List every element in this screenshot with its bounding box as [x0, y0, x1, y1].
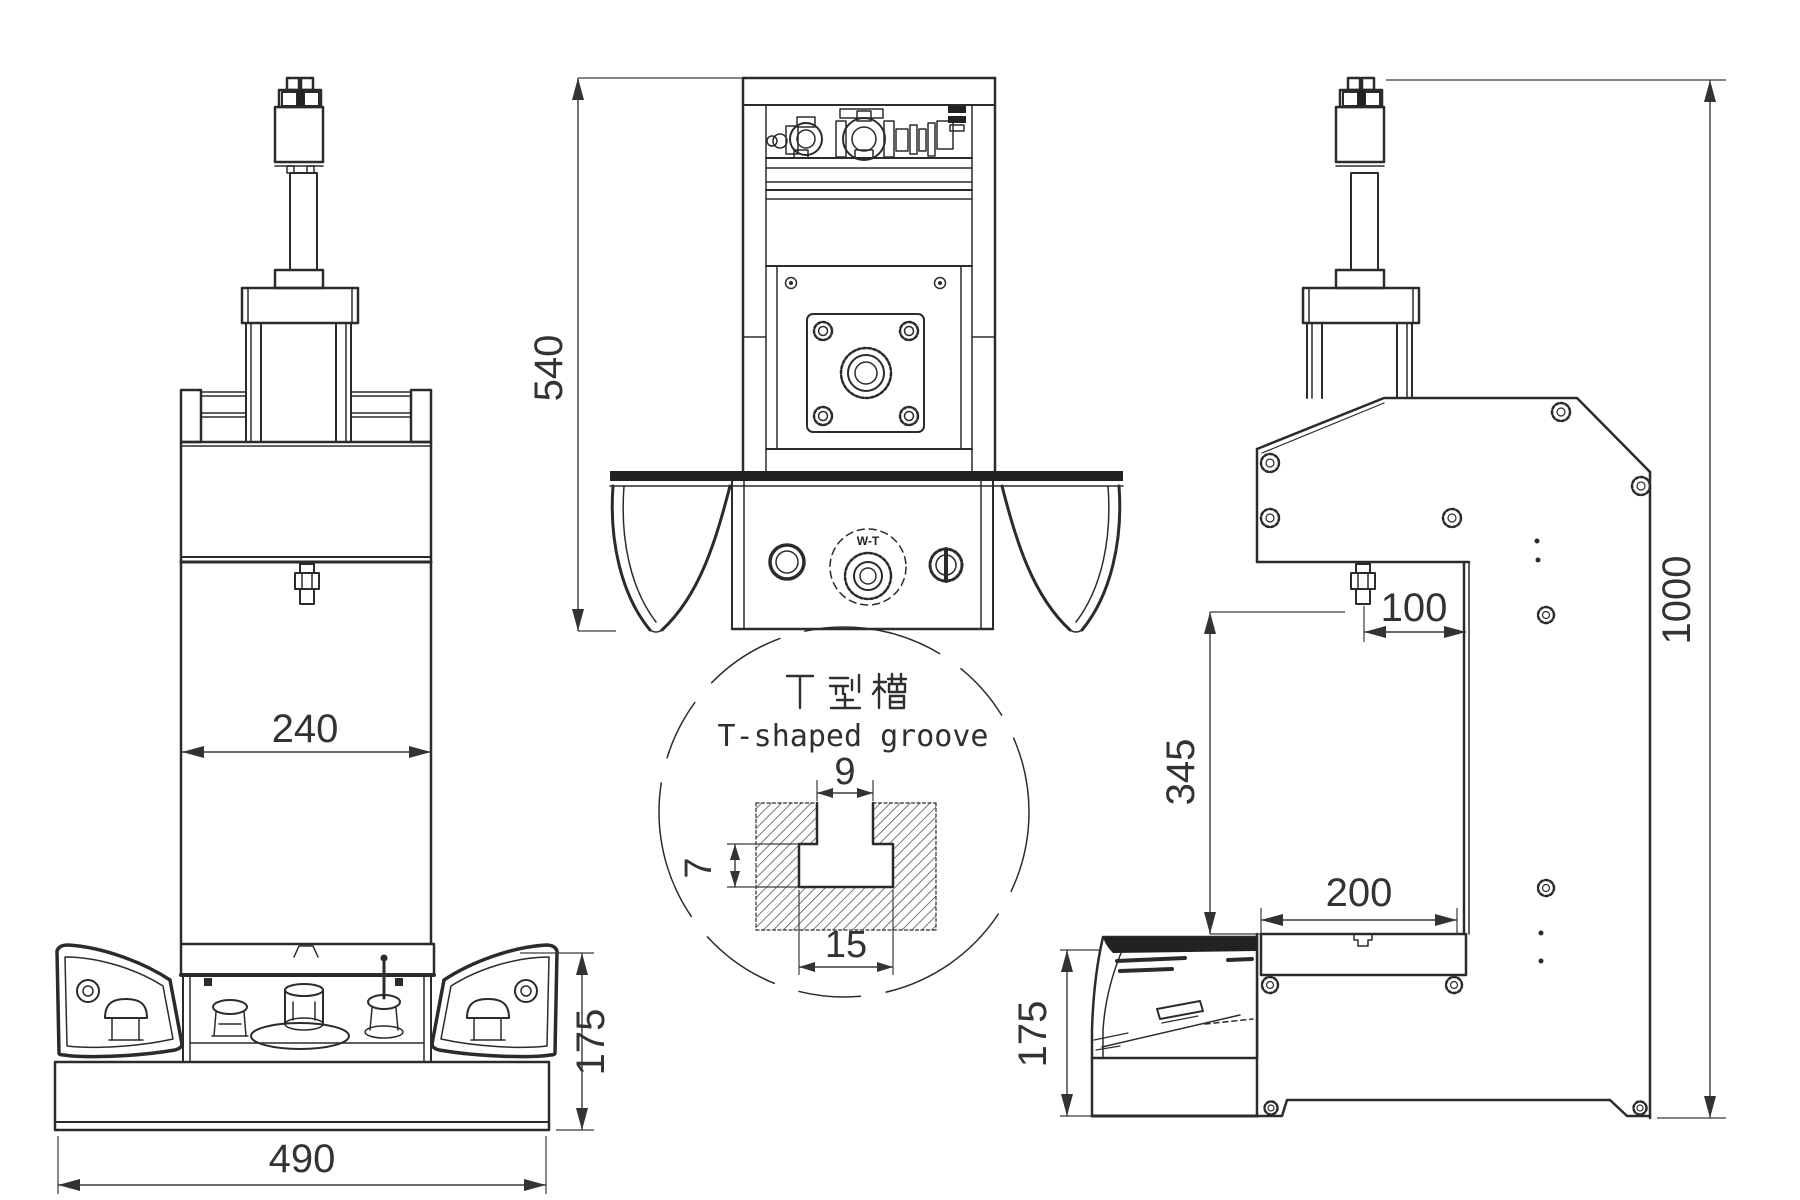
deck-left-wing — [612, 486, 650, 630]
deck-right-wing — [1082, 486, 1120, 630]
dim-daylight-opening: 345 — [1159, 739, 1203, 806]
side-frame-column — [1464, 562, 1554, 964]
panel-view: W-T — [610, 78, 1123, 632]
dim-base-width: 490 — [269, 1137, 336, 1181]
main-valve — [843, 118, 885, 160]
start-button — [251, 984, 349, 1049]
cylinder-flange — [242, 288, 358, 323]
dim-total-height: 1000 — [1655, 556, 1699, 645]
knob-label: W-T — [857, 534, 880, 548]
front-control-deck — [183, 955, 431, 1063]
dim-cavity-height: 7 — [678, 857, 720, 878]
t-slot-notch — [1354, 934, 1372, 946]
detail-title-cn: T 型 槽 — [787, 672, 905, 713]
dim-table-depth: 200 — [1326, 871, 1393, 915]
side-table-plate — [1261, 934, 1466, 975]
side-frame-head — [1257, 398, 1650, 1118]
front-left-wing-guard — [57, 945, 182, 1057]
side-view — [1092, 78, 1650, 1118]
detail-title-cjk-glyphs: T 型 槽 — [787, 672, 906, 713]
dim-front-base-height: 175 — [569, 1009, 613, 1076]
dim-side-base-height: 175 — [1011, 1001, 1055, 1068]
pneumatic-frl-unit — [767, 106, 966, 160]
panel-control-deck: W-T — [610, 471, 1123, 632]
small-button — [212, 1000, 248, 1036]
deck-screw — [395, 978, 403, 986]
front-ram-nut — [295, 564, 319, 604]
main-knob — [845, 553, 891, 599]
front-column — [181, 442, 431, 944]
side-pedestal — [1092, 1058, 1257, 1116]
dim-column-width: 240 — [272, 707, 339, 751]
t-groove-detail: 9 7 15 T 型 槽 T-shaped groove — [659, 627, 1029, 997]
deck-screw — [204, 978, 212, 986]
front-view — [55, 78, 557, 1130]
panel-frame — [743, 78, 995, 471]
piston-rod — [290, 173, 317, 270]
detail-title-en: T-shaped groove — [718, 719, 989, 754]
hatched-block — [756, 803, 936, 930]
dim-neck-width: 9 — [834, 751, 855, 793]
dim-cavity-width: 15 — [825, 924, 867, 966]
technical-drawing-page: 240 490 175 — [0, 0, 1800, 1200]
dim-throat-depth: 100 — [1381, 586, 1448, 630]
side-deck-shroud — [1092, 937, 1257, 1058]
dim-upper-height: 540 — [527, 335, 571, 402]
lever-switch — [365, 955, 403, 1039]
front-air-cylinder — [242, 78, 358, 442]
side-ram-nut — [1351, 564, 1375, 604]
side-air-cylinder — [1303, 78, 1419, 398]
panel-mounting-plate — [786, 278, 946, 433]
front-table-plate — [181, 944, 434, 975]
front-cylinder-mount — [181, 390, 431, 442]
front-right-wing-guard — [432, 945, 557, 1057]
round-button — [770, 545, 804, 579]
press-machine-drawing: 240 490 175 — [0, 0, 1800, 1200]
front-base — [55, 1062, 549, 1130]
side-frame-base — [1257, 934, 1650, 1116]
